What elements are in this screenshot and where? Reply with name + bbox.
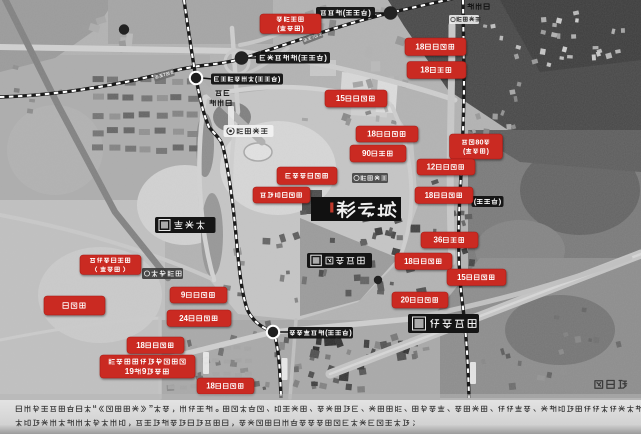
svg-text:24: 24 (179, 314, 188, 323)
svg-text:(: ( (343, 8, 346, 17)
svg-text:90: 90 (362, 149, 371, 158)
svg-text:18: 18 (425, 191, 434, 200)
svg-text:): ) (324, 53, 327, 62)
svg-text:“: “ (92, 404, 96, 414)
svg-text:80: 80 (475, 137, 483, 146)
svg-text:18: 18 (136, 341, 145, 350)
svg-text:”: ” (149, 404, 153, 414)
svg-text:): ) (499, 197, 502, 206)
svg-text:9: 9 (142, 367, 147, 376)
svg-text:18: 18 (367, 130, 376, 139)
svg-text:18: 18 (415, 42, 425, 51)
svg-text:18: 18 (404, 257, 413, 266)
svg-text:19: 19 (125, 367, 135, 376)
svg-text:9: 9 (181, 291, 186, 300)
svg-text:15: 15 (457, 273, 466, 282)
svg-text:): ) (368, 8, 371, 17)
svg-text:(: ( (298, 53, 301, 62)
svg-text:18: 18 (420, 66, 430, 75)
svg-text:(: ( (474, 197, 477, 206)
svg-text:36: 36 (434, 236, 443, 245)
svg-text:20: 20 (401, 296, 410, 305)
svg-text:18: 18 (206, 382, 215, 391)
svg-text:12: 12 (427, 163, 436, 172)
svg-text:15: 15 (336, 94, 346, 103)
